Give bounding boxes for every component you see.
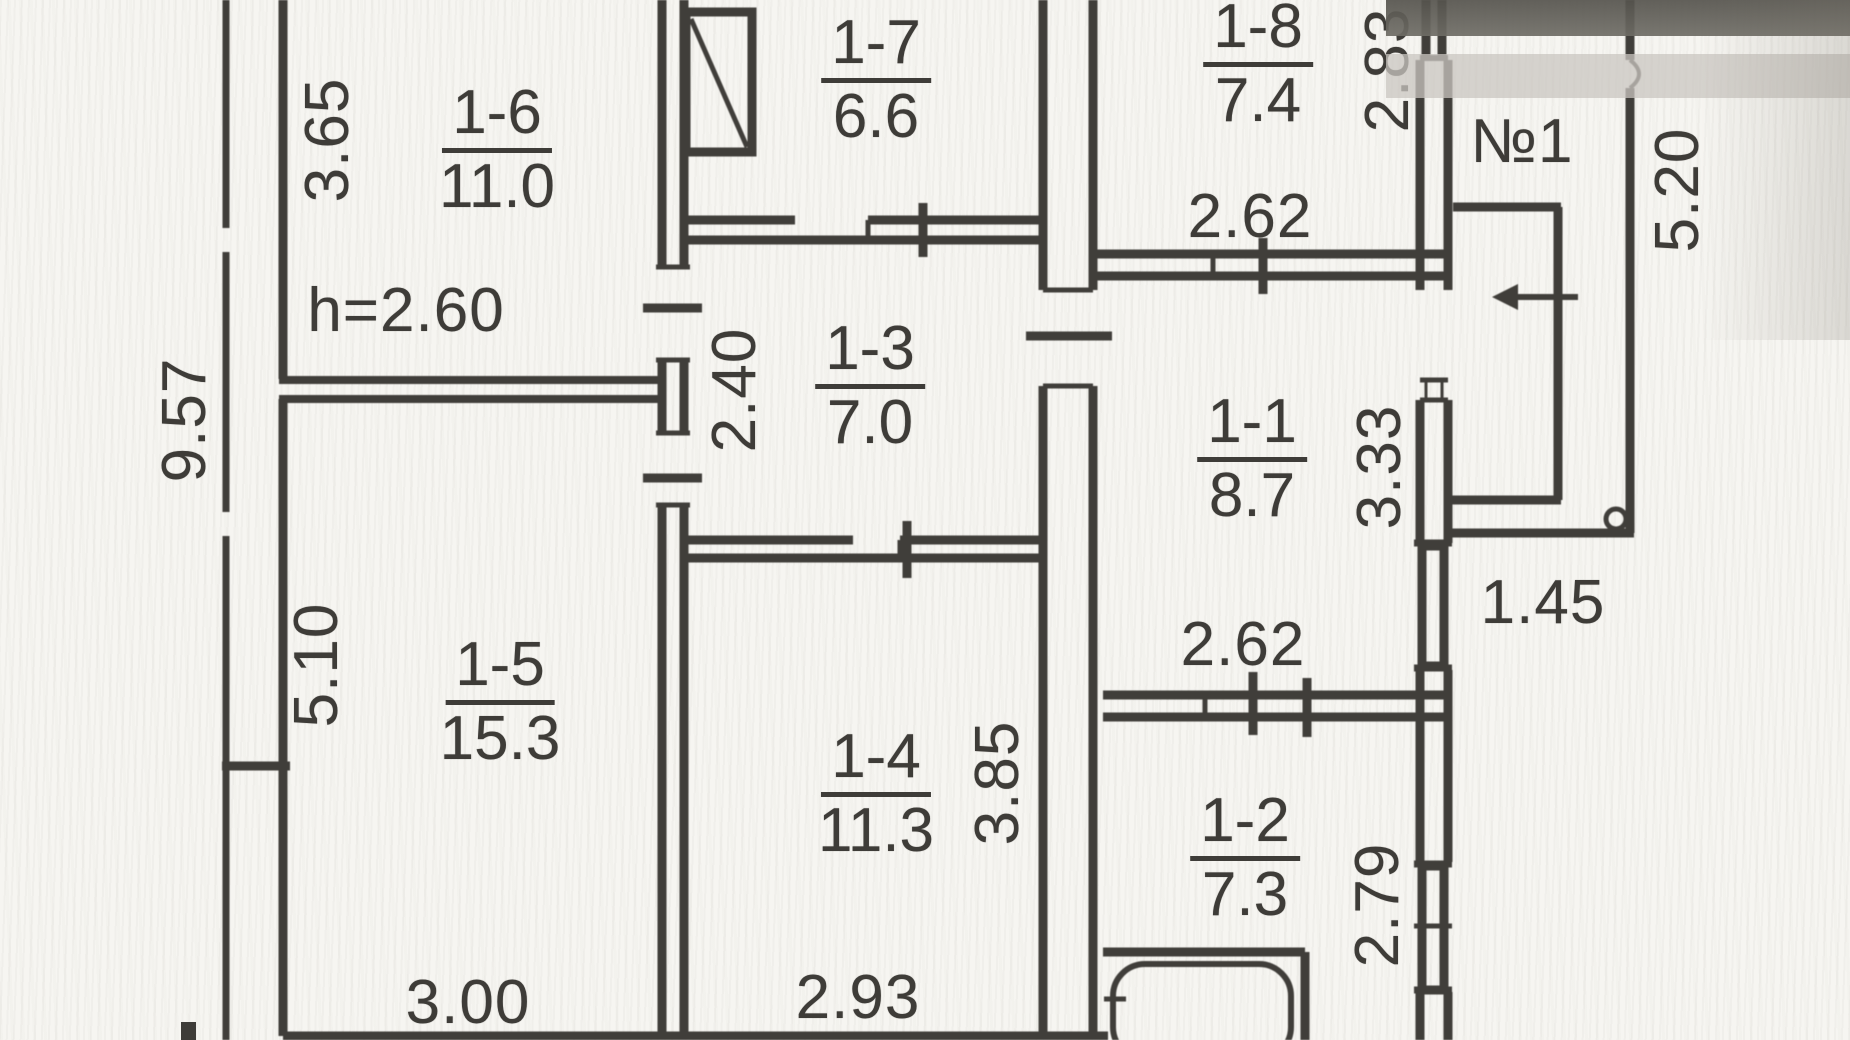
room-area: 8.7 — [1197, 462, 1307, 527]
dim-5-10: 5.10 — [286, 603, 348, 728]
dim-3-00: 3.00 — [406, 972, 531, 1034]
room-number: 1-4 — [821, 726, 931, 797]
dim-3-65: 3.65 — [297, 78, 359, 203]
room-area: 7.4 — [1203, 67, 1313, 132]
room-label-1-1: 1-1 8.7 — [1197, 391, 1307, 527]
stairs-icon — [686, 12, 752, 152]
room-area: 11.3 — [818, 797, 934, 862]
room-label-1-5: 1-5 15.3 — [440, 634, 561, 770]
dim-3-33: 3.33 — [1349, 405, 1411, 530]
room-label-1-3: 1-3 7.0 — [815, 318, 925, 454]
door-pivot-icon — [1606, 509, 1626, 529]
scan-artifact-edge-shade — [1700, 0, 1850, 340]
room-area: 15.3 — [440, 705, 561, 770]
room-number: 1-6 — [442, 82, 552, 153]
room-number: 1-1 — [1197, 391, 1307, 462]
entrance-number-label: №1 — [1471, 111, 1574, 173]
room-number: 1-8 — [1203, 0, 1313, 67]
room-number: 1-5 — [445, 634, 555, 705]
dim-3-85: 3.85 — [967, 721, 1029, 846]
dim-2-40: 2.40 — [704, 328, 766, 453]
room-number: 1-3 — [815, 318, 925, 389]
room-area: 7.3 — [1190, 861, 1300, 926]
entrance-arrow-icon — [1492, 284, 1578, 310]
room-number: 1-7 — [821, 12, 931, 83]
scan-artifact-corner-mark — [181, 1022, 196, 1040]
dim-2-93: 2.93 — [796, 967, 921, 1029]
floor-plan-sheet: 1-6 11.0 1-7 6.6 1-8 7.4 1-3 7.0 1-1 8.7… — [0, 0, 1850, 1040]
dim-2-62-bottom: 2.62 — [1181, 614, 1306, 676]
ceiling-height-label: h=2.60 — [307, 280, 504, 342]
room-label-1-6: 1-6 11.0 — [439, 82, 555, 218]
room-area: 6.6 — [821, 83, 931, 148]
dim-1-45: 1.45 — [1481, 572, 1606, 634]
room-label-1-4: 1-4 11.3 — [818, 726, 934, 862]
room-label-1-7: 1-7 6.6 — [821, 12, 931, 148]
dim-2-62-top: 2.62 — [1188, 186, 1313, 248]
bathtub-icon — [1103, 952, 1305, 1040]
room-number: 1-2 — [1190, 790, 1300, 861]
dim-2-79: 2.79 — [1347, 843, 1409, 968]
room-label-1-8: 1-8 7.4 — [1203, 0, 1313, 132]
room-label-1-2: 1-2 7.3 — [1190, 790, 1300, 926]
dim-9-57: 9.57 — [154, 358, 216, 483]
room-area: 11.0 — [439, 153, 555, 218]
room-area: 7.0 — [815, 389, 925, 454]
